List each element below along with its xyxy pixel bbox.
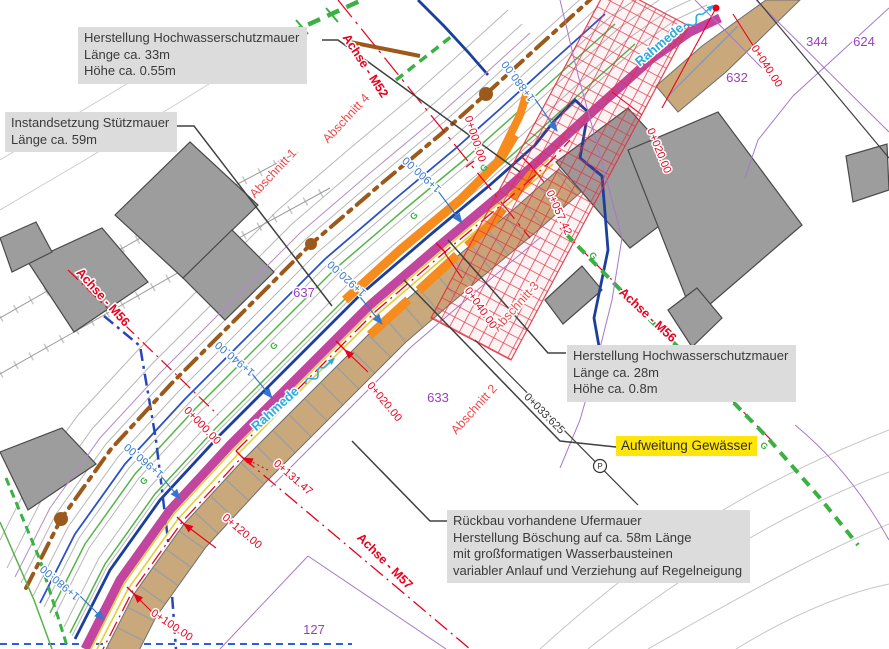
highlight-aufweitung-gewaesser: Aufweitung Gewässer — [616, 436, 757, 456]
annotation-line: Länge ca. 59m — [11, 132, 169, 149]
annotation-line: Herstellung Hochwasserschutzmauer — [573, 348, 788, 365]
annotation-hochwasserschutz-28m: Herstellung Hochwasserschutzmauer Länge … — [567, 345, 796, 402]
station-red: 0+020.00 — [364, 380, 404, 424]
manhole — [54, 512, 68, 526]
parcel-number: 637 — [293, 285, 315, 300]
parcel-number: 344 — [806, 34, 828, 49]
annotation-line: Höhe ca. 0.55m — [84, 63, 299, 80]
station-blue: 1+980.00 — [38, 562, 82, 602]
manhole — [305, 238, 317, 250]
annotation-line: Höhe ca. 0.8m — [573, 381, 788, 398]
section-label-1: Abschnitt 1 — [247, 146, 299, 201]
parcel-number: 624 — [853, 34, 875, 49]
point-marker-label: P — [597, 462, 602, 471]
wall-band-top-right — [656, 0, 800, 112]
gas-marker: G — [268, 340, 280, 352]
parcel-number: 633 — [427, 390, 449, 405]
annotation-line: Länge ca. 33m — [84, 47, 299, 64]
annotation-stuetzmauer: Instandsetzung Stützmauer Länge ca. 59m — [5, 112, 177, 152]
annotation-line: mit großformatigen Wasserbausteinen — [453, 546, 742, 563]
parcel-number: 632 — [726, 70, 748, 85]
section-label-4: Abschnitt 4 — [320, 91, 372, 146]
annotation-line: Länge ca. 28m — [573, 365, 788, 382]
site-plan: Achse - M52 Achse - M56 Achse - M56 Achs… — [0, 0, 889, 649]
station-black: 0+033.625 — [521, 391, 566, 436]
parcel-number: 127 — [303, 622, 325, 637]
manhole — [479, 87, 493, 101]
annotation-line: Instandsetzung Stützmauer — [11, 115, 169, 132]
gas-marker: G — [758, 440, 770, 452]
gas-marker: G — [408, 210, 420, 222]
axis-label-m56-right: Achse - M56 — [616, 285, 679, 345]
station-red: 0+131.47 — [271, 458, 315, 498]
leader-box4 — [352, 441, 447, 521]
plan-canvas: Achse - M52 Achse - M56 Achse - M56 Achs… — [0, 0, 889, 649]
axis-label-m52: Achse - M52 — [340, 31, 391, 100]
annotation-line: Herstellung Hochwasserschutzmauer — [84, 30, 299, 47]
axis-label-m57: Achse - M57 — [354, 530, 416, 592]
station-red: 0+100.00 — [149, 607, 195, 644]
annotation-rueckbau: Rückbau vorhandene Ufermauer Herstellung… — [447, 510, 750, 583]
section-label-2: Abschnitt 2 — [448, 382, 500, 437]
station-red: 0+120.00 — [220, 512, 264, 552]
annotation-line: Rückbau vorhandene Ufermauer — [453, 513, 742, 530]
annotation-hochwasserschutz-33m: Herstellung Hochwasserschutzmauer Länge … — [78, 27, 307, 84]
gas-marker: G — [138, 475, 150, 487]
annotation-line: variabler Anlauf und Verziehung auf Rege… — [453, 563, 742, 580]
station-red: 0+040.00 — [748, 43, 784, 90]
annotation-line: Herstellung Böschung auf ca. 58m Länge — [453, 530, 742, 547]
